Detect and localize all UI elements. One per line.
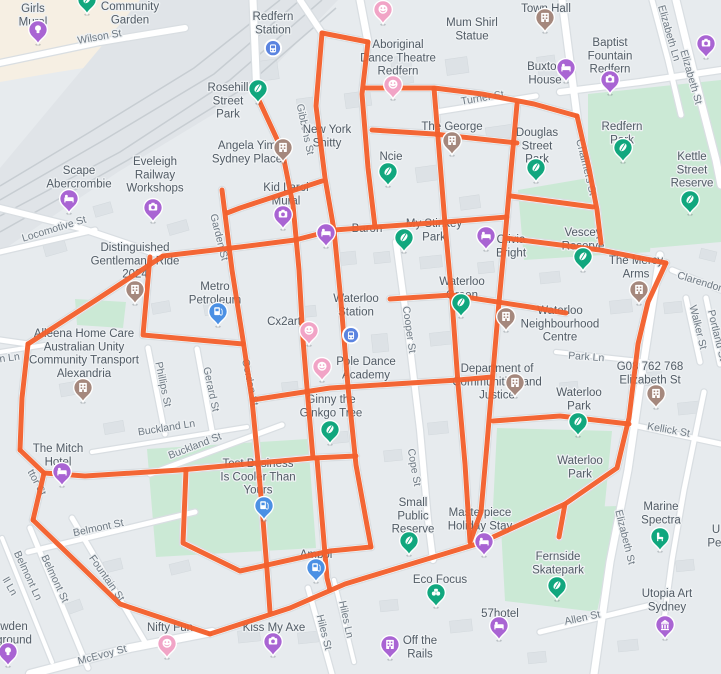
bed-leg xyxy=(479,544,480,546)
building-window xyxy=(81,384,83,386)
building-window xyxy=(450,137,452,139)
bed-leg xyxy=(494,628,495,630)
label-g08-elizabeth: G08 762 768Elizabeth St xyxy=(617,361,684,386)
label-ncie: Ncie xyxy=(379,151,402,163)
bed-icon xyxy=(481,234,490,238)
building xyxy=(383,449,402,462)
building-window xyxy=(507,316,509,318)
building xyxy=(663,301,682,314)
building xyxy=(617,639,638,652)
building-window xyxy=(657,393,659,395)
label-fernside-skatepark: FernsideSkatepark xyxy=(532,551,584,576)
bed-pillow xyxy=(495,622,498,625)
building-window xyxy=(637,289,639,291)
building-window xyxy=(133,289,135,291)
fuel-screen xyxy=(261,503,264,506)
building-window xyxy=(136,289,138,291)
building-door xyxy=(655,396,657,398)
building-window xyxy=(453,140,455,142)
smiley-icon xyxy=(162,639,171,648)
museum-beam xyxy=(661,623,669,624)
building-window xyxy=(654,393,656,395)
label-marine-spectra: MarineSpectra xyxy=(641,501,681,526)
bed-pillow xyxy=(322,229,325,232)
label-angela-yim-sydney-place: Angela YimSydney Place xyxy=(212,140,282,165)
building-window xyxy=(391,641,393,643)
bulb-icon xyxy=(35,25,41,31)
building xyxy=(379,599,398,612)
smiley-eye xyxy=(381,7,383,9)
building-door xyxy=(134,292,136,294)
building-window xyxy=(640,286,642,288)
camera-lens xyxy=(151,206,155,210)
building-window xyxy=(281,144,283,146)
map-canvas[interactable]: Wilson StGibbons StGarden StGordon StTur… xyxy=(0,0,721,674)
building-door xyxy=(282,150,284,152)
building-window xyxy=(450,140,452,142)
building-window xyxy=(391,644,393,646)
bulb-icon xyxy=(5,647,11,653)
building-window xyxy=(654,390,656,392)
building-window xyxy=(513,379,515,381)
building-window xyxy=(81,387,83,389)
building-window xyxy=(516,379,518,381)
building xyxy=(539,271,560,284)
building-window xyxy=(637,286,639,288)
building xyxy=(609,299,632,314)
bed-icon xyxy=(321,231,330,235)
smiley-eye xyxy=(384,7,386,9)
bed-pillow xyxy=(562,64,565,67)
building-window xyxy=(504,313,506,315)
bed-leg xyxy=(57,474,58,476)
building-window xyxy=(504,316,506,318)
building-door xyxy=(82,390,84,392)
label-cx2art: Cx2art xyxy=(267,316,302,328)
camera-top xyxy=(151,203,154,205)
bed-leg xyxy=(487,544,488,546)
building-door xyxy=(544,20,546,22)
train-window xyxy=(271,46,275,49)
chair-leg xyxy=(657,539,658,541)
building xyxy=(373,251,390,264)
train-wheel xyxy=(274,50,276,52)
binoculars-icon xyxy=(436,592,440,596)
building xyxy=(459,195,481,211)
building-door xyxy=(389,647,391,649)
camera-lens xyxy=(271,640,275,644)
building xyxy=(419,255,442,269)
building xyxy=(675,559,694,572)
train-wheel xyxy=(349,337,351,339)
bed-icon xyxy=(494,624,503,628)
bulb-base xyxy=(37,31,40,33)
camera-lens xyxy=(281,213,285,217)
smiley-eye xyxy=(394,82,396,84)
bed-leg xyxy=(321,235,322,237)
smiley-eye xyxy=(320,364,322,366)
bed-pillow xyxy=(65,195,68,198)
bed-leg xyxy=(561,70,562,72)
train-window xyxy=(349,333,353,336)
map-svg[interactable]: Wilson StGibbons StGarden StGordon StTur… xyxy=(0,0,721,674)
building-window xyxy=(546,17,548,19)
smiley-icon xyxy=(388,80,397,89)
binoculars-bridge xyxy=(434,589,438,592)
building-window xyxy=(281,147,283,149)
poi-pin-redfern-station[interactable] xyxy=(265,40,281,56)
train-wheel xyxy=(352,337,354,339)
building-window xyxy=(136,286,138,288)
building-window xyxy=(543,17,545,19)
building xyxy=(259,59,280,81)
bed-pillow xyxy=(480,538,483,541)
smiley-icon xyxy=(317,362,326,371)
museum-column xyxy=(662,625,664,629)
museum-column xyxy=(664,625,666,629)
building-window xyxy=(513,382,515,384)
building-door xyxy=(505,319,507,321)
building-window xyxy=(546,14,548,16)
bed-leg xyxy=(481,238,482,240)
poi-pin-waterloo-station[interactable] xyxy=(343,327,359,343)
smiley-eye xyxy=(323,364,325,366)
camera-lens xyxy=(608,78,612,82)
building-window xyxy=(657,390,659,392)
building xyxy=(477,261,494,274)
bed-pillow xyxy=(482,232,485,235)
building-window xyxy=(507,313,509,315)
label-redfern-station: RedfernStation xyxy=(253,11,294,36)
train-icon xyxy=(270,44,276,52)
binoculars-icon xyxy=(432,592,436,596)
label-off-the-rails: Off theRails xyxy=(403,635,437,660)
museum-base xyxy=(661,629,669,630)
building-door xyxy=(514,385,516,387)
smiley-icon xyxy=(304,326,313,335)
bed-leg xyxy=(64,201,65,203)
smiley-eye xyxy=(310,328,312,330)
building-window xyxy=(284,147,286,149)
building-window xyxy=(388,641,390,643)
fuel-screen xyxy=(215,309,218,312)
bulb-base xyxy=(7,653,10,655)
camera-lens xyxy=(704,42,708,46)
smiley-icon xyxy=(378,5,387,14)
bed-pillow xyxy=(58,468,61,471)
camera-top xyxy=(608,75,611,77)
train-icon xyxy=(348,331,354,339)
building-window xyxy=(543,14,545,16)
bed-icon xyxy=(479,540,488,544)
bed-leg xyxy=(72,201,73,203)
chair-leg xyxy=(662,539,663,541)
building-door xyxy=(638,292,640,294)
street-label-park-ln: Park Ln xyxy=(568,350,605,365)
building xyxy=(449,619,472,633)
label-utopia-art-sydney: Utopia ArtSydney xyxy=(642,588,693,613)
building-window xyxy=(84,384,86,386)
bed-leg xyxy=(502,628,503,630)
camera-top xyxy=(704,39,707,41)
smiley-eye xyxy=(391,82,393,84)
building-window xyxy=(516,382,518,384)
fuel-screen xyxy=(313,565,316,568)
label-baptist-fountain-redfern: BaptistFountainRedfern xyxy=(588,37,633,76)
bed-icon xyxy=(561,66,570,70)
bed-icon xyxy=(64,197,73,201)
chair-seat xyxy=(657,537,663,539)
smiley-eye xyxy=(168,641,170,643)
building-window xyxy=(640,289,642,291)
building-window xyxy=(84,387,86,389)
building-door xyxy=(451,143,453,145)
bed-leg xyxy=(489,238,490,240)
building-window xyxy=(453,137,455,139)
bed-leg xyxy=(569,70,570,72)
camera-top xyxy=(271,637,274,639)
building-window xyxy=(284,144,286,146)
building xyxy=(445,57,469,76)
camera-top xyxy=(281,210,284,212)
building xyxy=(527,651,546,664)
bed-icon xyxy=(57,470,66,474)
smiley-eye xyxy=(165,641,167,643)
building-window xyxy=(388,644,390,646)
building xyxy=(427,421,448,435)
bed-leg xyxy=(65,474,66,476)
building xyxy=(371,333,389,353)
train-wheel xyxy=(271,50,273,52)
bed-leg xyxy=(329,235,330,237)
smiley-eye xyxy=(307,328,309,330)
building-window xyxy=(133,286,135,288)
museum-column xyxy=(667,625,669,629)
